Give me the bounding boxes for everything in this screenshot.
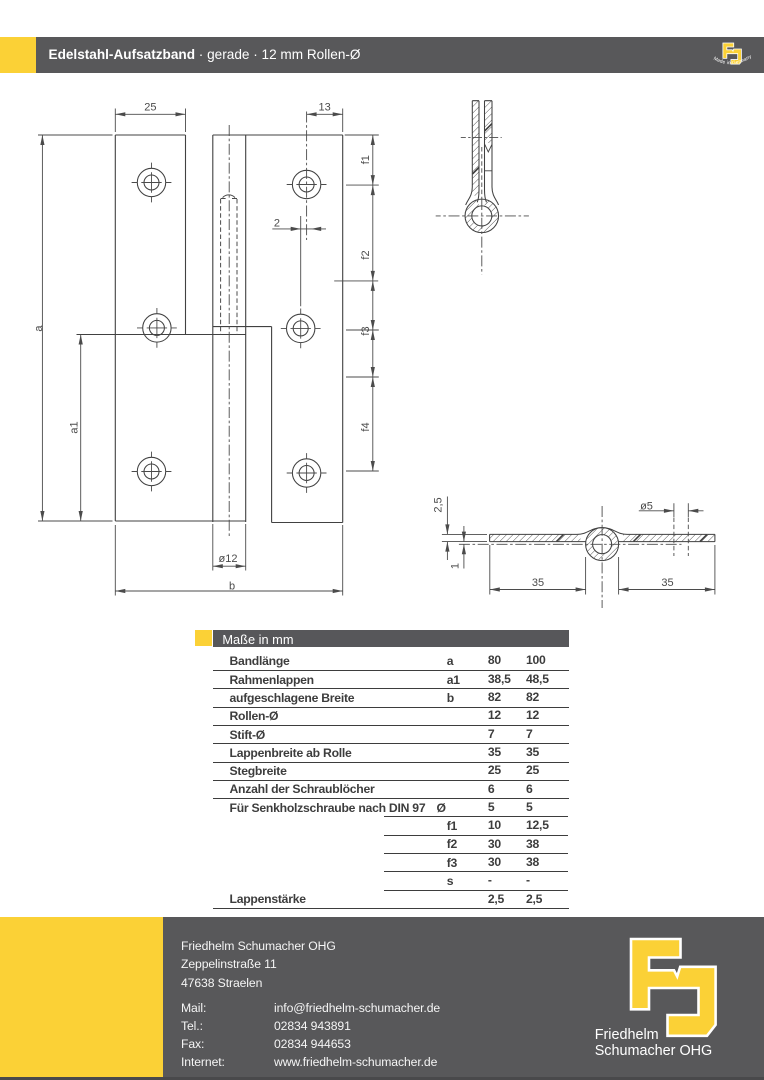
svg-text:Friedhelm: Friedhelm xyxy=(595,1027,659,1043)
svg-text:Schumacher OHG: Schumacher OHG xyxy=(595,1043,713,1059)
